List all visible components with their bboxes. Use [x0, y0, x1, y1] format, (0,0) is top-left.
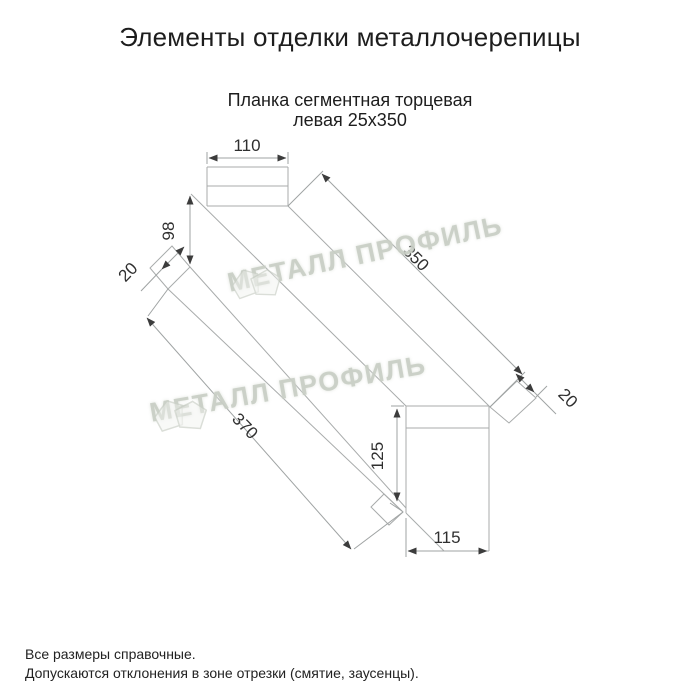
top-end-section — [207, 167, 288, 206]
dimension-115: 115 — [406, 518, 487, 557]
page: Элементы отделки металлочерепицы Планка … — [0, 0, 700, 700]
dim-label-115: 115 — [433, 528, 460, 547]
dim-label-20-bottom: 20 — [554, 385, 581, 412]
strip-edges — [168, 194, 490, 512]
dimension-370: 370 — [147, 289, 403, 549]
technical-drawing-canvas: 110 98 20 350 20 — [0, 0, 700, 700]
dimension-350: 350 — [288, 171, 525, 407]
hem-flaps — [150, 246, 536, 525]
dim-label-20-top: 20 — [115, 259, 142, 286]
dimension-20-top: 20 — [115, 247, 184, 291]
dim-label-370: 370 — [228, 409, 261, 443]
dim-label-350: 350 — [399, 241, 432, 274]
dim-label-98: 98 — [159, 222, 178, 241]
dim-label-110: 110 — [233, 136, 260, 155]
dim-label-125: 125 — [368, 442, 387, 470]
dimension-110: 110 — [207, 136, 288, 164]
